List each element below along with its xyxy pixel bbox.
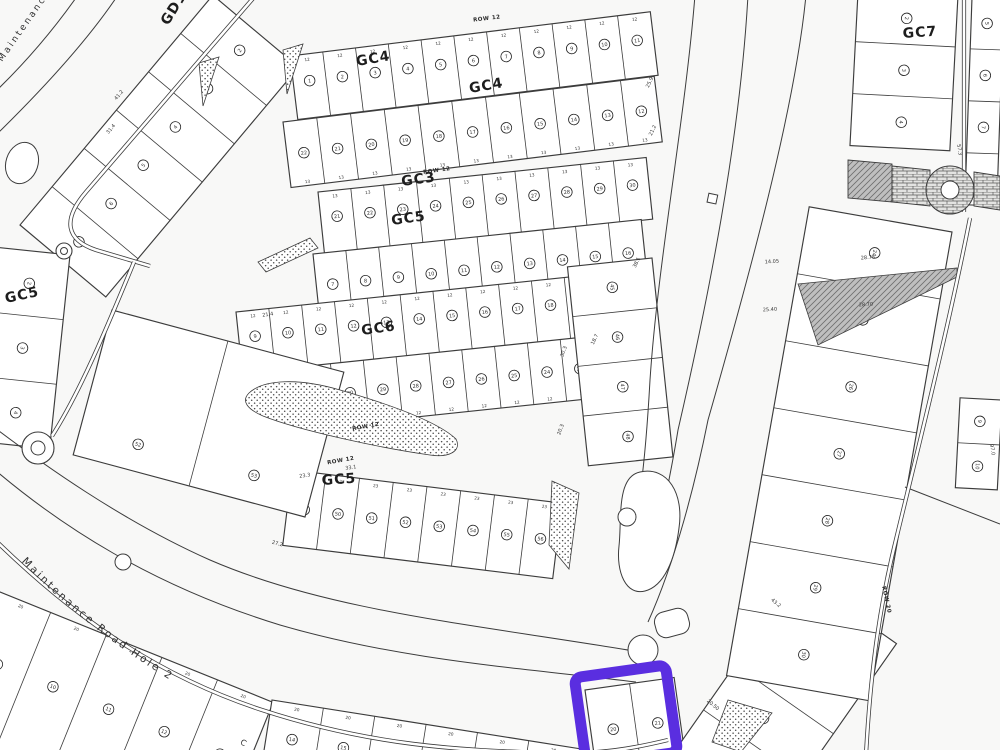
lot-number: 9	[253, 334, 257, 340]
lot-dimension: 13	[372, 170, 378, 176]
lot-number: 12	[638, 109, 645, 116]
lot-number: 17	[514, 306, 521, 313]
lot-number: 26	[847, 383, 854, 390]
lot-dimension: 12	[547, 396, 553, 402]
lot-dimension: 12	[416, 410, 422, 416]
lot-dimension: 23	[373, 483, 379, 489]
lot-number: 18	[435, 134, 442, 141]
lot-dimension: 23	[440, 491, 446, 497]
lot-dimension: 12	[481, 403, 487, 409]
lot[interactable]: 10	[972, 461, 983, 472]
lot-dimension: 13	[463, 179, 469, 185]
lot-number: 16	[481, 310, 488, 317]
lot-number: 20	[368, 142, 375, 149]
lot-number: 25	[511, 373, 518, 380]
lot-number: 15	[592, 254, 599, 261]
lot-dimension: 12	[435, 41, 441, 47]
lot-number: 14	[570, 117, 577, 124]
lot-number: 4	[897, 120, 903, 123]
lot-number: 28	[823, 517, 830, 524]
lot-dimension: 12	[566, 24, 572, 30]
lot-number: 11	[317, 327, 324, 334]
lot-dimension: 13	[365, 189, 371, 195]
lot-dimension: 23	[474, 495, 480, 501]
lot-number: 22	[367, 210, 374, 217]
paver-road-segment	[892, 166, 930, 206]
pond	[115, 554, 131, 570]
bunker	[628, 635, 658, 665]
lot-number: 15	[340, 745, 347, 750]
lot-number: 8	[364, 278, 368, 284]
lot-number: 51	[368, 516, 375, 523]
lot-number: 7	[331, 282, 335, 288]
lot-number: 26	[498, 196, 505, 203]
lot-dimension: 12	[632, 16, 638, 22]
lot-number: 10	[428, 271, 435, 278]
lot-number: 27	[835, 450, 842, 457]
lot-number: 10	[285, 330, 292, 337]
lot-number: 29	[596, 186, 603, 193]
lot-number: 55	[503, 532, 510, 539]
lot-number: 29	[811, 584, 818, 591]
lot-number: 28	[412, 383, 419, 390]
lot-dimension: 12	[250, 313, 256, 319]
lot-dimension: 12	[337, 53, 343, 59]
lot-number: 45	[608, 284, 615, 291]
lot-number: 10	[601, 42, 608, 49]
lot-number: 22	[300, 150, 307, 157]
lot-dimension: 12	[513, 285, 519, 291]
lot-number: 18	[547, 303, 554, 310]
block-label: GC5	[321, 471, 357, 489]
lot-number: 50	[334, 511, 341, 518]
lot-dimension: 13	[608, 141, 614, 147]
lot-dimension: 13	[304, 179, 310, 185]
lot-dimension: 13	[541, 150, 547, 156]
lot-dimension: 13	[642, 137, 648, 143]
lot-number: 3	[900, 68, 906, 71]
lot-number: 27	[531, 193, 538, 200]
lot-number: 56	[537, 536, 544, 543]
lot-dimension: 13	[406, 166, 412, 172]
lot-number: 9	[397, 275, 401, 281]
lot-number: 15	[449, 313, 456, 320]
lot-dimension: 12	[304, 57, 310, 63]
lot-number: 47	[619, 383, 626, 390]
lot-dimension: 12	[501, 32, 507, 38]
dimension-label: 25.40	[763, 307, 778, 314]
lot-dimension: 23	[406, 487, 412, 493]
lot[interactable]: 4	[896, 117, 907, 128]
block-label: GC7	[902, 24, 938, 42]
lot-number: 14	[416, 316, 423, 323]
lot[interactable]: 9	[974, 416, 985, 427]
lot-number: 14	[559, 257, 566, 264]
band-gc7-col: 234	[850, 0, 958, 151]
lot-number: 21	[334, 146, 341, 153]
lot-dimension: 12	[381, 299, 387, 305]
lot-number: 30	[629, 183, 636, 190]
plat-map-svg: 7654321122123124125126127128129121012111…	[0, 0, 1000, 750]
tee-marker	[707, 193, 718, 204]
lot-number: 26	[478, 376, 485, 383]
lot-number: 15	[537, 121, 544, 128]
lot-number: 12	[350, 323, 357, 330]
lot-number: 19	[402, 138, 409, 145]
lot-dimension: 12	[283, 309, 289, 315]
lot-dimension: 13	[507, 154, 513, 160]
lot-dimension: 13	[574, 145, 580, 151]
lot-number: 9	[976, 420, 982, 423]
lot-dimension: 13	[529, 172, 535, 178]
lot-number: 16	[625, 251, 632, 258]
lot-number: 21	[334, 214, 341, 221]
paver-road-segment	[974, 172, 1000, 210]
lot-number: 27	[445, 380, 452, 387]
lot-number: 30	[800, 651, 807, 658]
lot[interactable]: 2	[901, 13, 912, 24]
lot-number: 4	[12, 411, 18, 415]
lot-dimension: 13	[595, 165, 601, 171]
lot-number: 6	[981, 74, 987, 77]
lot-number: 13	[526, 261, 533, 268]
lot-number: 10	[974, 463, 980, 470]
lot-dimension: 12	[316, 306, 322, 312]
lot-number: 53	[436, 524, 443, 531]
dimension-label: 14.05	[765, 259, 780, 266]
lot-dimension: 23	[508, 500, 514, 506]
lot-dimension: 12	[402, 45, 408, 51]
lot-number: 16	[503, 125, 510, 132]
lot-number: 2	[903, 17, 909, 20]
lot-number: 14	[288, 737, 295, 744]
plat-map-page: 7654321122123124125126127128129121012111…	[0, 0, 1000, 750]
lot[interactable]: 5	[982, 18, 993, 29]
lot-dimension: 23	[541, 504, 547, 510]
bunker	[618, 508, 636, 526]
roundabout-island	[941, 181, 959, 199]
cul-de-sac-island	[31, 441, 45, 455]
lot-number: 52	[402, 520, 409, 527]
lot-dimension: 12	[533, 28, 539, 34]
lot-number: 17	[469, 129, 476, 136]
lot-dimension: 13	[496, 176, 502, 182]
lot-dimension: 12	[480, 289, 486, 295]
lot-number: 28	[563, 190, 570, 197]
lot-dimension: 12	[448, 406, 454, 412]
lot[interactable]: 7	[978, 122, 989, 133]
lot-dimension: 12	[349, 303, 355, 309]
lot[interactable]: 3	[898, 65, 909, 76]
lot-number: 29	[380, 387, 387, 394]
dimension-label: 28.75	[861, 255, 876, 262]
lot-number: 21	[654, 720, 661, 727]
lot-number: 12	[493, 264, 500, 271]
lot-number: 25	[465, 200, 472, 207]
lot-dimension: 12	[447, 292, 453, 298]
lot-dimension: 12	[468, 36, 474, 42]
lot-number: 3	[19, 346, 25, 350]
dimension-label: 28.70	[859, 302, 874, 309]
lot-number: 5	[983, 22, 989, 25]
lot-dimension: 13	[562, 169, 568, 175]
lot-number: 20	[610, 727, 617, 734]
lot-dimension: 13	[473, 158, 479, 164]
lot-dimension: 13	[332, 193, 338, 199]
lot-number: 7	[980, 126, 986, 129]
lot-dimension: 13	[627, 162, 633, 168]
lot-number: 24	[432, 203, 439, 210]
lot-dimension: 12	[414, 296, 420, 302]
lot[interactable]: 6	[980, 70, 991, 81]
lot-dimension: 12	[599, 20, 605, 26]
cul-de-sac-island	[61, 248, 68, 255]
lot-number: 24	[544, 370, 551, 377]
lot-number: 54	[469, 528, 476, 535]
lot-number: 13	[604, 113, 611, 120]
lot-number: 11	[461, 268, 468, 275]
lot-number: 11	[634, 38, 641, 45]
lot-dimension: 12	[545, 282, 551, 288]
lot-dimension: 13	[338, 174, 344, 180]
lot-number: 46	[613, 334, 620, 341]
lot-dimension: 12	[514, 400, 520, 406]
paver-road-segment	[848, 160, 892, 202]
lot-number: 48	[624, 433, 631, 440]
